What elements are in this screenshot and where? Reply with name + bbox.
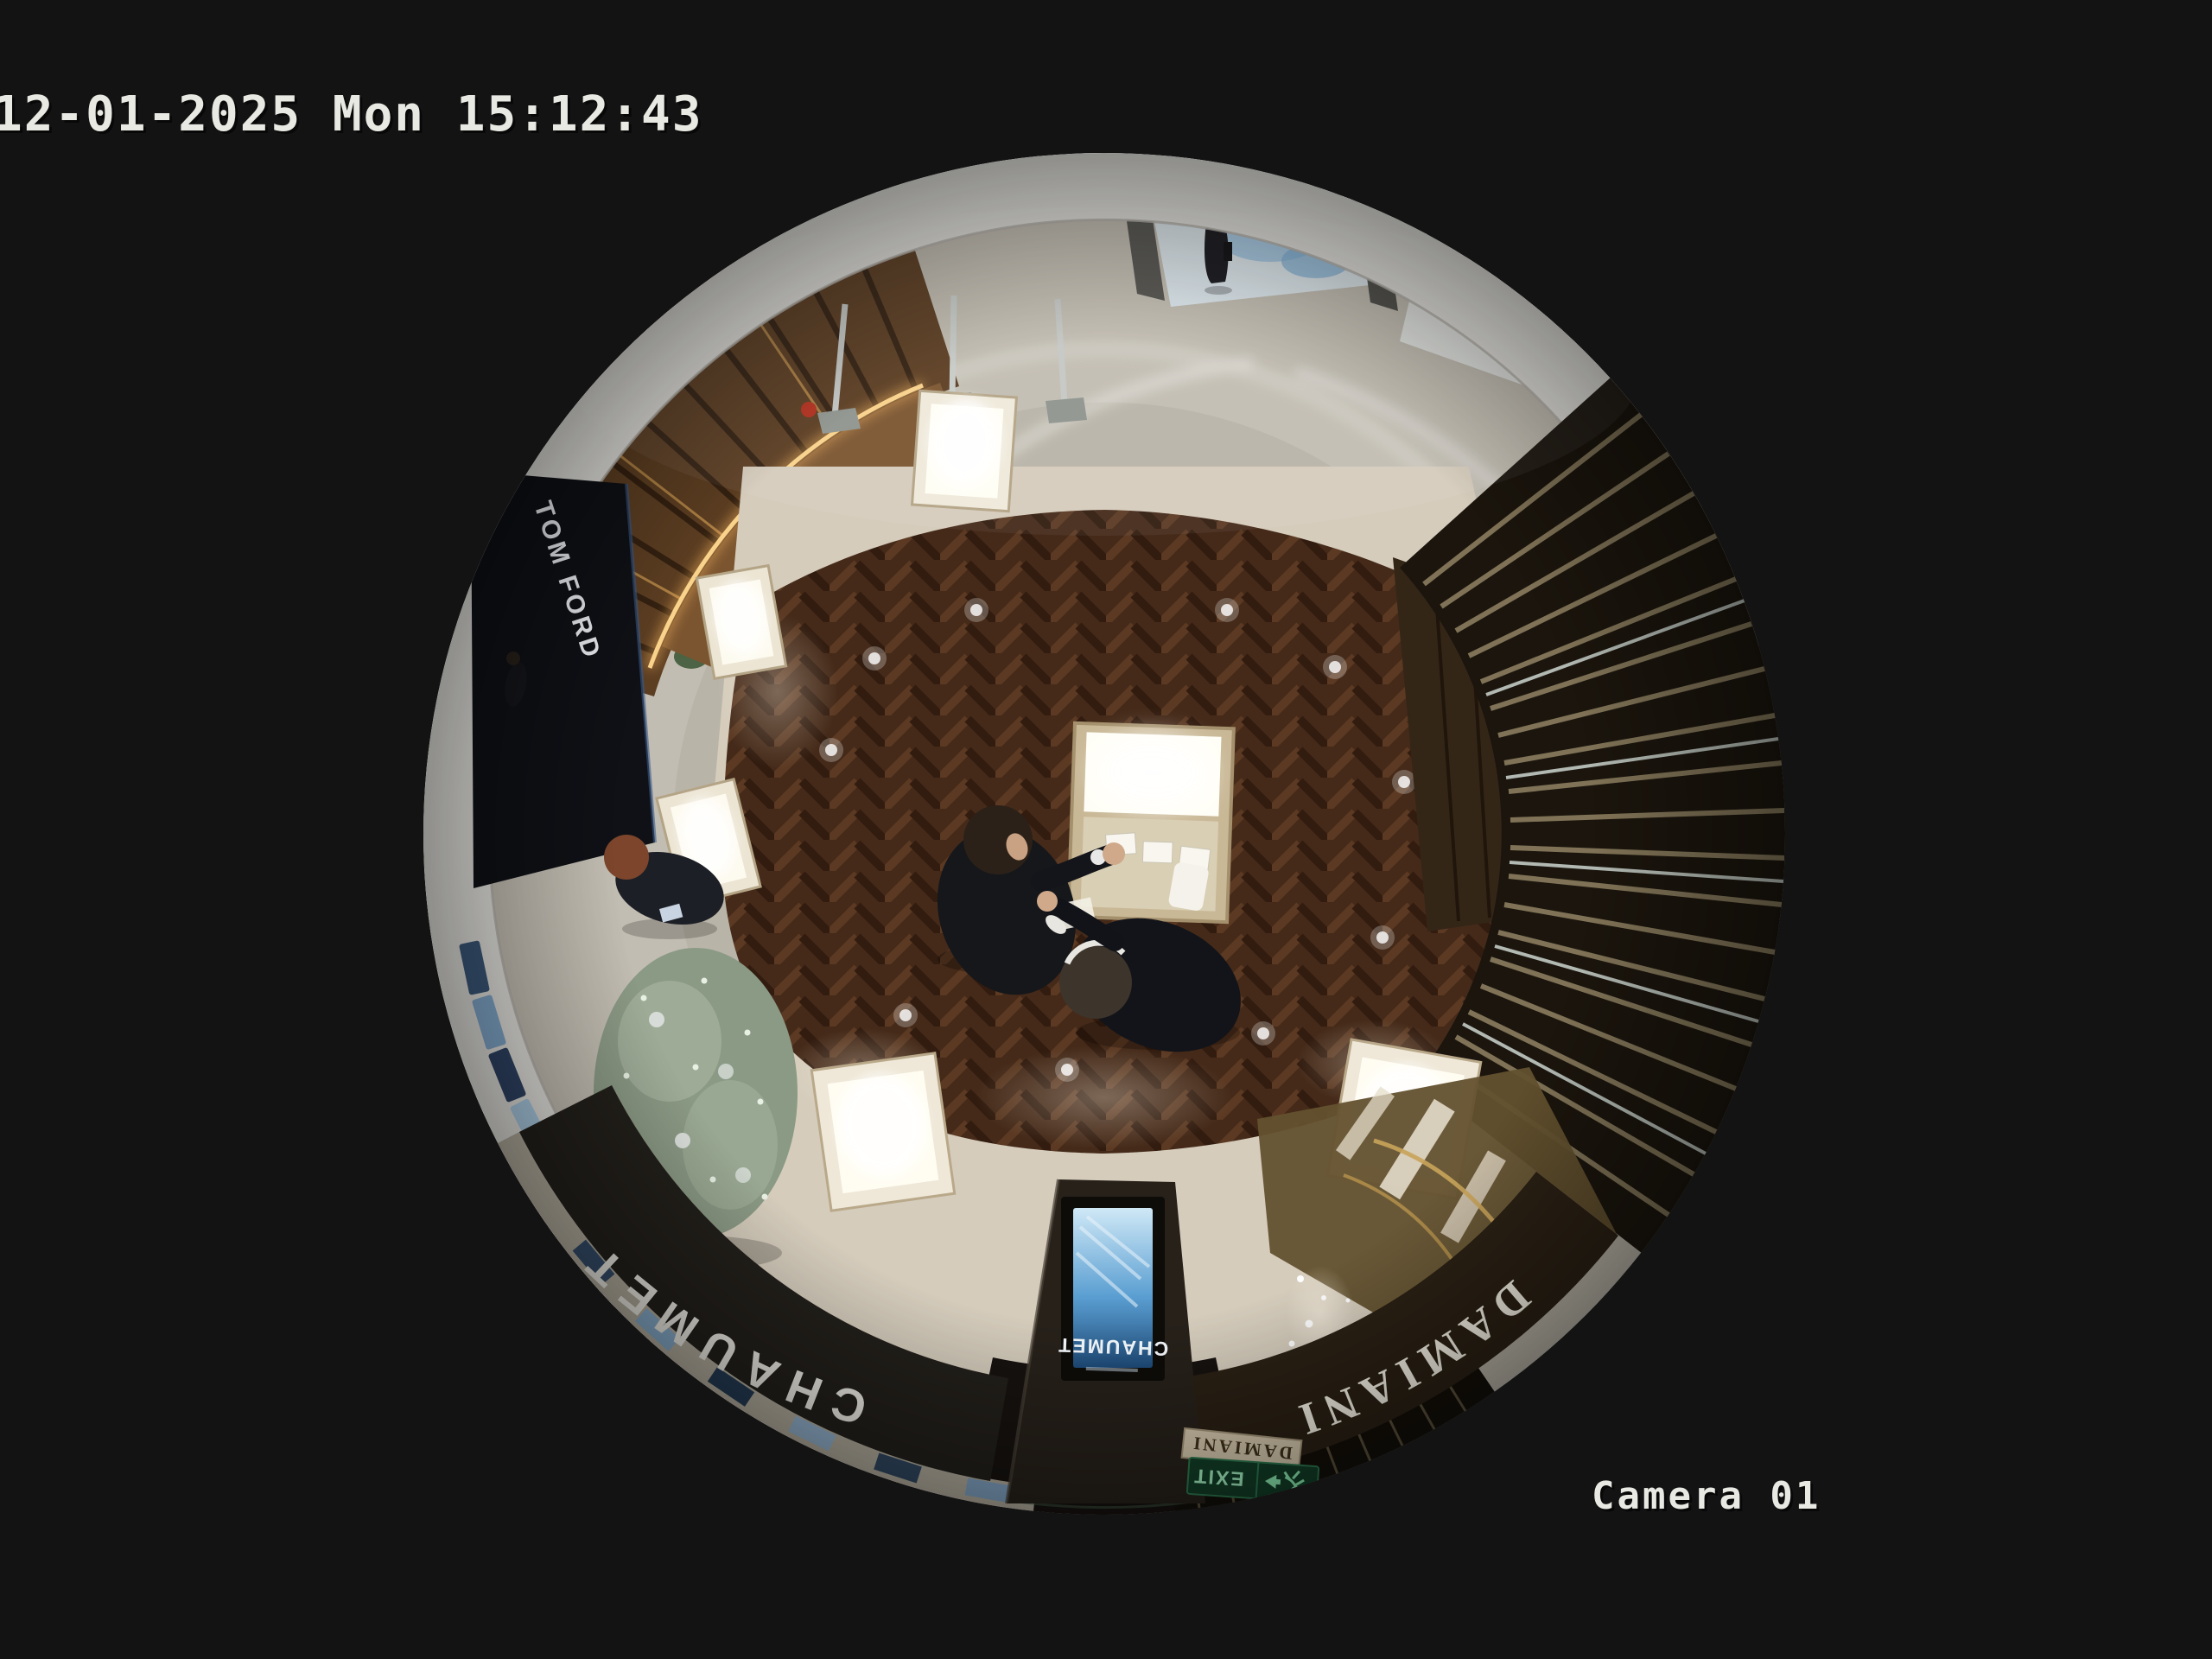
osd-camera-label: Camera 01 — [1592, 1474, 1821, 1518]
fisheye-camera-view: TOM FORD — [0, 0, 2212, 1659]
lens-vignette — [423, 153, 1785, 1515]
cctv-frame: TOM FORD — [0, 0, 2212, 1659]
osd-timestamp: 12-01-2025 Mon 15:12:43 — [0, 86, 702, 143]
